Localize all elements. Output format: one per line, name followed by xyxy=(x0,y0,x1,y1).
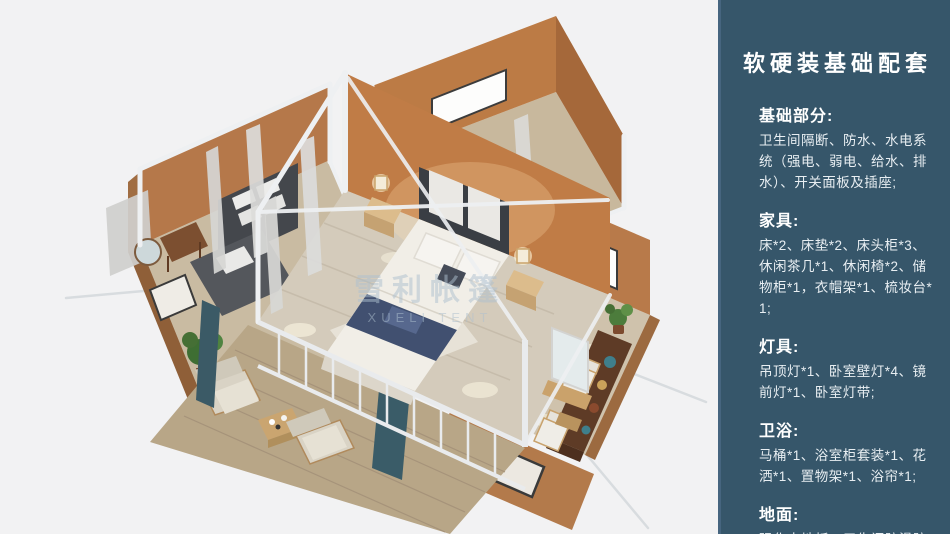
table-lamp xyxy=(517,249,529,263)
section-bathroom-heading: 卫浴: xyxy=(759,417,934,441)
floorplan-3d-render: 雪利帐篷 XUELI TENT xyxy=(0,0,718,534)
section-flooring-body: 强化木地板、卫生间防滑防潮石塑板; xyxy=(759,529,934,534)
section-furniture-body: 床*2、床垫*2、床头柜*3、休闲茶几*1、休闲椅*2、储物柜*1，衣帽架*1、… xyxy=(759,235,934,319)
section-lighting-body: 吊顶灯*1、卧室壁灯*4、镜前灯*1、卧室灯带; xyxy=(759,361,934,403)
panel-title: 软硬装基础配套 xyxy=(735,46,940,78)
section-flooring-heading: 地面: xyxy=(759,501,934,525)
section-lighting: 灯具: 吊顶灯*1、卧室壁灯*4、镜前灯*1、卧室灯带; xyxy=(759,333,934,403)
page: 雪利帐篷 XUELI TENT 软硬装基础配套 基础部分: 卫生间隔断、防水、水… xyxy=(0,0,950,534)
section-furniture-heading: 家具: xyxy=(759,207,934,231)
watermark: 雪利帐篷 XUELI TENT xyxy=(354,274,506,325)
section-flooring: 地面: 强化木地板、卫生间防滑防潮石塑板; xyxy=(759,501,934,534)
section-basics-body: 卫生间隔断、防水、水电系统（强电、弱电、给水、排水）、开关面板及插座; xyxy=(759,130,934,193)
table-lamp xyxy=(375,176,387,190)
floorplan-3d-image: 雪利帐篷 XUELI TENT xyxy=(0,0,718,534)
info-panel: 软硬装基础配套 基础部分: 卫生间隔断、防水、水电系统（强电、弱电、给水、排水）… xyxy=(718,0,950,534)
section-furniture: 家具: 床*2、床垫*2、床头柜*3、休闲茶几*1、休闲椅*2、储物柜*1，衣帽… xyxy=(759,207,934,319)
watermark-cn: 雪利帐篷 xyxy=(354,274,506,307)
section-basics: 基础部分: 卫生间隔断、防水、水电系统（强电、弱电、给水、排水）、开关面板及插座… xyxy=(759,102,934,193)
section-bathroom-body: 马桶*1、浴室柜套装*1、花洒*1、置物架*1、浴帘*1; xyxy=(759,445,934,487)
watermark-en: XUELI TENT xyxy=(368,310,493,325)
section-lighting-heading: 灯具: xyxy=(759,333,934,357)
section-bathroom: 卫浴: 马桶*1、浴室柜套装*1、花洒*1、置物架*1、浴帘*1; xyxy=(759,417,934,487)
section-basics-heading: 基础部分: xyxy=(759,102,934,126)
